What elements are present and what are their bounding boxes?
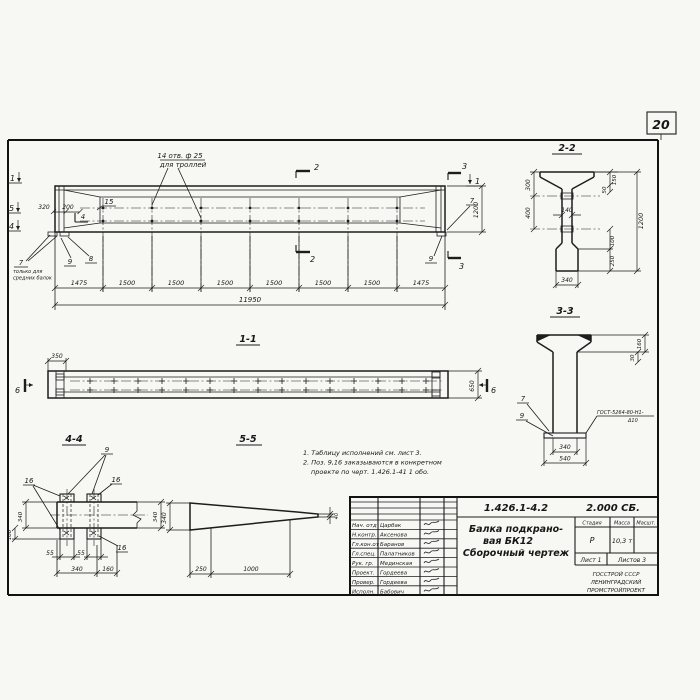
dim-40: 40 (334, 513, 340, 519)
cut-label-2-top: 2 (314, 163, 319, 172)
signature-mark (424, 578, 439, 582)
section-3-3: 3-3 160 30 7 9 ГОСТ-5264-80-Н1- Δ10 340 … (516, 306, 654, 466)
cut-marker-5-left: 5 (9, 204, 14, 213)
dim-140: 140 (561, 207, 573, 214)
dim-160: 160 (102, 566, 114, 573)
doc-code: 2.000 СБ. (586, 503, 640, 514)
signer-name: Царбак (380, 523, 402, 529)
pos-label-16-a: 16 (25, 477, 34, 485)
col-stage: Стадия (582, 521, 601, 527)
pos-label-8: 8 (89, 255, 94, 263)
dim-320: 320 (38, 204, 50, 211)
dim-350: 350 (51, 353, 63, 360)
cut-marker-4-inner: 4 (81, 213, 85, 221)
page-number: 20 (652, 117, 670, 132)
dim-total-11950: 11950 (239, 296, 262, 304)
signer-name: Баранов (380, 542, 404, 548)
dim-340: 340 (559, 444, 571, 451)
pos-label-9-right: 9 (429, 255, 434, 263)
org-line3: ПРОМСТРОЙПРОЕКТ (587, 587, 646, 594)
dim-seg-7: 1500 (364, 279, 381, 287)
signer-role: Гл.спец. (352, 552, 376, 558)
signer-role: Рук. гр. (352, 561, 374, 567)
dim-seg-5: 1500 (266, 279, 283, 287)
section-3-3-title: 3-3 (556, 306, 574, 317)
note-line3: проекте по черт. 1.426.1-41 1 обо. (311, 468, 429, 476)
dim-340: 340 (161, 512, 168, 524)
cut-marker-6-right: 6 (491, 386, 496, 395)
signer-name: Гордеева (380, 571, 408, 577)
signature-mark (424, 521, 439, 525)
trolley-holes (102, 207, 399, 223)
section-1-1: 1-1 350 650 6 6 (15, 334, 496, 401)
signer-name: Аксенова (379, 533, 408, 539)
dim-300: 300 (525, 179, 532, 191)
cut-mark-3: 3 3 (448, 162, 467, 271)
notes: 1. Таблицу исполнений см. лист 3. 2. Поз… (303, 449, 442, 476)
signer-role: Исполн. (352, 590, 375, 596)
hole-note-line1: 14 отв. ф 25 (157, 152, 203, 160)
pos-label-15: 15 (105, 198, 114, 206)
mass-value: 10,3 т (612, 537, 633, 545)
dim-seg-4: 1500 (217, 279, 234, 287)
cut-marker-4-left: 4 (9, 222, 14, 231)
dim-650: 650 (469, 380, 476, 392)
dim-seg-8: 1475 (413, 279, 430, 287)
signer-name: Палатников (380, 552, 415, 558)
signature-mark (424, 540, 439, 544)
sheet-number: Лист 1 (580, 557, 602, 564)
signer-name: Гордеева (380, 580, 408, 586)
dim-540: 540 (559, 456, 571, 463)
pos-label-16-b: 16 (112, 476, 121, 484)
signature-mark (424, 588, 439, 592)
dim-340: 340 (561, 277, 573, 284)
dim-seg-1: 1475 (71, 279, 88, 287)
pos-7-note-line1: только для (13, 269, 42, 275)
dim-250: 250 (610, 255, 616, 266)
section-4-4: 4-4 9 16 16 16 340 100 340 55 55 340 (7, 434, 165, 577)
pos-label-7: 7 (19, 259, 24, 267)
signature-mark (424, 559, 439, 563)
dim-1000: 1000 (243, 566, 258, 573)
signer-role: Провер. (352, 580, 375, 586)
section-2-2-title: 2-2 (558, 143, 576, 154)
note-line1: 1. Таблицу исполнений см. лист 3. (303, 449, 422, 457)
dim-1200: 1200 (637, 213, 645, 230)
signer-role: Проект. (352, 571, 375, 577)
org-line2: ЛЕНИНГРАДСКИЙ (590, 579, 641, 586)
cut-label-3-top: 3 (462, 162, 467, 171)
signer-role: Гл.кон.от (352, 542, 380, 548)
pos-label-16-c: 16 (118, 544, 127, 552)
page-number-box: 20 (647, 112, 676, 140)
pos-label-7-right: 7 (470, 197, 475, 205)
title-block: 1.426.1-4.2 2.000 СБ. Балка подкрано- ва… (350, 497, 658, 596)
note-line2: 2. Поз. 9,16 заказываются в конкретном (303, 459, 442, 467)
dim-160: 160 (637, 338, 643, 349)
col-scale: Масшт. (636, 521, 655, 527)
dim-150: 150 (612, 174, 618, 185)
cut-marker-1-left: 1 (10, 174, 15, 183)
section-5-5-title: 5-5 (239, 434, 257, 445)
pos-7-note-line2: средних балок (13, 276, 52, 282)
org-line1: ГОССТРОЙ СССР (593, 571, 640, 578)
drawing-title-line3: Сборочный чертеж (463, 548, 570, 559)
signature-mark (424, 569, 439, 573)
dim-340-left: 340 (18, 511, 24, 522)
signer-role: Н.контр. (352, 533, 377, 539)
pos-label-9: 9 (68, 258, 73, 266)
drawing-title-line2: вая БК12 (483, 536, 533, 547)
dim-50: 50 (602, 186, 608, 193)
dim-30: 30 (630, 354, 636, 361)
drawing-title-line1: Балка подкрано- (469, 524, 563, 535)
dim-100: 100 (610, 235, 616, 246)
signer-name: Бабович (380, 590, 405, 596)
dim-55-a: 55 (46, 550, 54, 557)
scanned-drawing-sheet: 20 14 отв. ф 25 для троллей 1 5 4 320 (0, 0, 700, 700)
signer-name: Мединская (380, 561, 413, 567)
pos-label-7: 7 (521, 395, 526, 403)
cut-mark-2: 2 2 (296, 163, 319, 264)
stage-value: Р (590, 536, 595, 545)
pos-label-9: 9 (105, 446, 110, 454)
dim-100: 100 (7, 529, 13, 540)
dim-seg-3: 1500 (168, 279, 185, 287)
section-1-1-title: 1-1 (239, 334, 256, 345)
main-elevation-view: 14 отв. ф 25 для троллей 1 5 4 320 200 1… (7, 152, 486, 310)
dim-250: 250 (195, 566, 207, 573)
dim-200: 200 (62, 204, 74, 211)
hole-note-line2: для троллей (159, 161, 207, 169)
signature-mark (424, 531, 439, 535)
doc-number: 1.426.1-4.2 (484, 503, 548, 514)
col-mass: Масса (614, 521, 630, 527)
section-2-2: 2-2 300 400 150 50 1200 100 250 140 340 (525, 143, 645, 288)
cut-marker-1-right: 1 (475, 177, 480, 186)
pos-label-9: 9 (520, 412, 525, 420)
dim-seg-6: 1500 (315, 279, 332, 287)
signer-rows: Нач. отд Царбак Н.контр. Аксенова Гл.кон… (352, 521, 439, 596)
section-4-4-title: 4-4 (64, 434, 83, 445)
dim-55-b: 55 (77, 550, 85, 557)
signature-mark (424, 550, 439, 554)
weld-note-line1: ГОСТ-5264-80-Н1- (597, 410, 644, 416)
sheet-count: Листов 3 (617, 557, 646, 564)
dim-seg-2: 1500 (119, 279, 136, 287)
drawing-canvas: 20 14 отв. ф 25 для троллей 1 5 4 320 (0, 0, 700, 700)
cut-label-2-bottom: 2 (310, 255, 315, 264)
dim-340-right: 340 (153, 511, 159, 522)
signer-role: Нач. отд (352, 523, 377, 529)
cut-label-3-bottom: 3 (459, 262, 464, 271)
cut-marker-6-left: 6 (15, 386, 20, 395)
dim-340-bottom: 340 (71, 566, 83, 573)
weld-note-line2: Δ10 (627, 418, 638, 424)
dim-400: 400 (525, 207, 532, 219)
